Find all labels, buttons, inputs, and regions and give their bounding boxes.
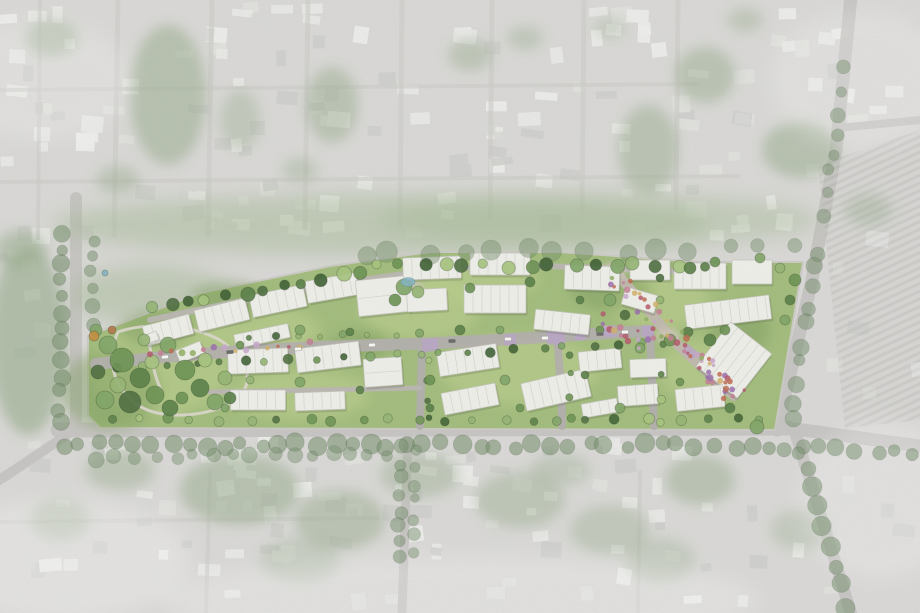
photo-grain-overlay — [0, 0, 920, 613]
masterplan-aerial-map — [0, 0, 920, 613]
masterplan-canvas — [0, 0, 920, 613]
grain — [0, 0, 920, 613]
